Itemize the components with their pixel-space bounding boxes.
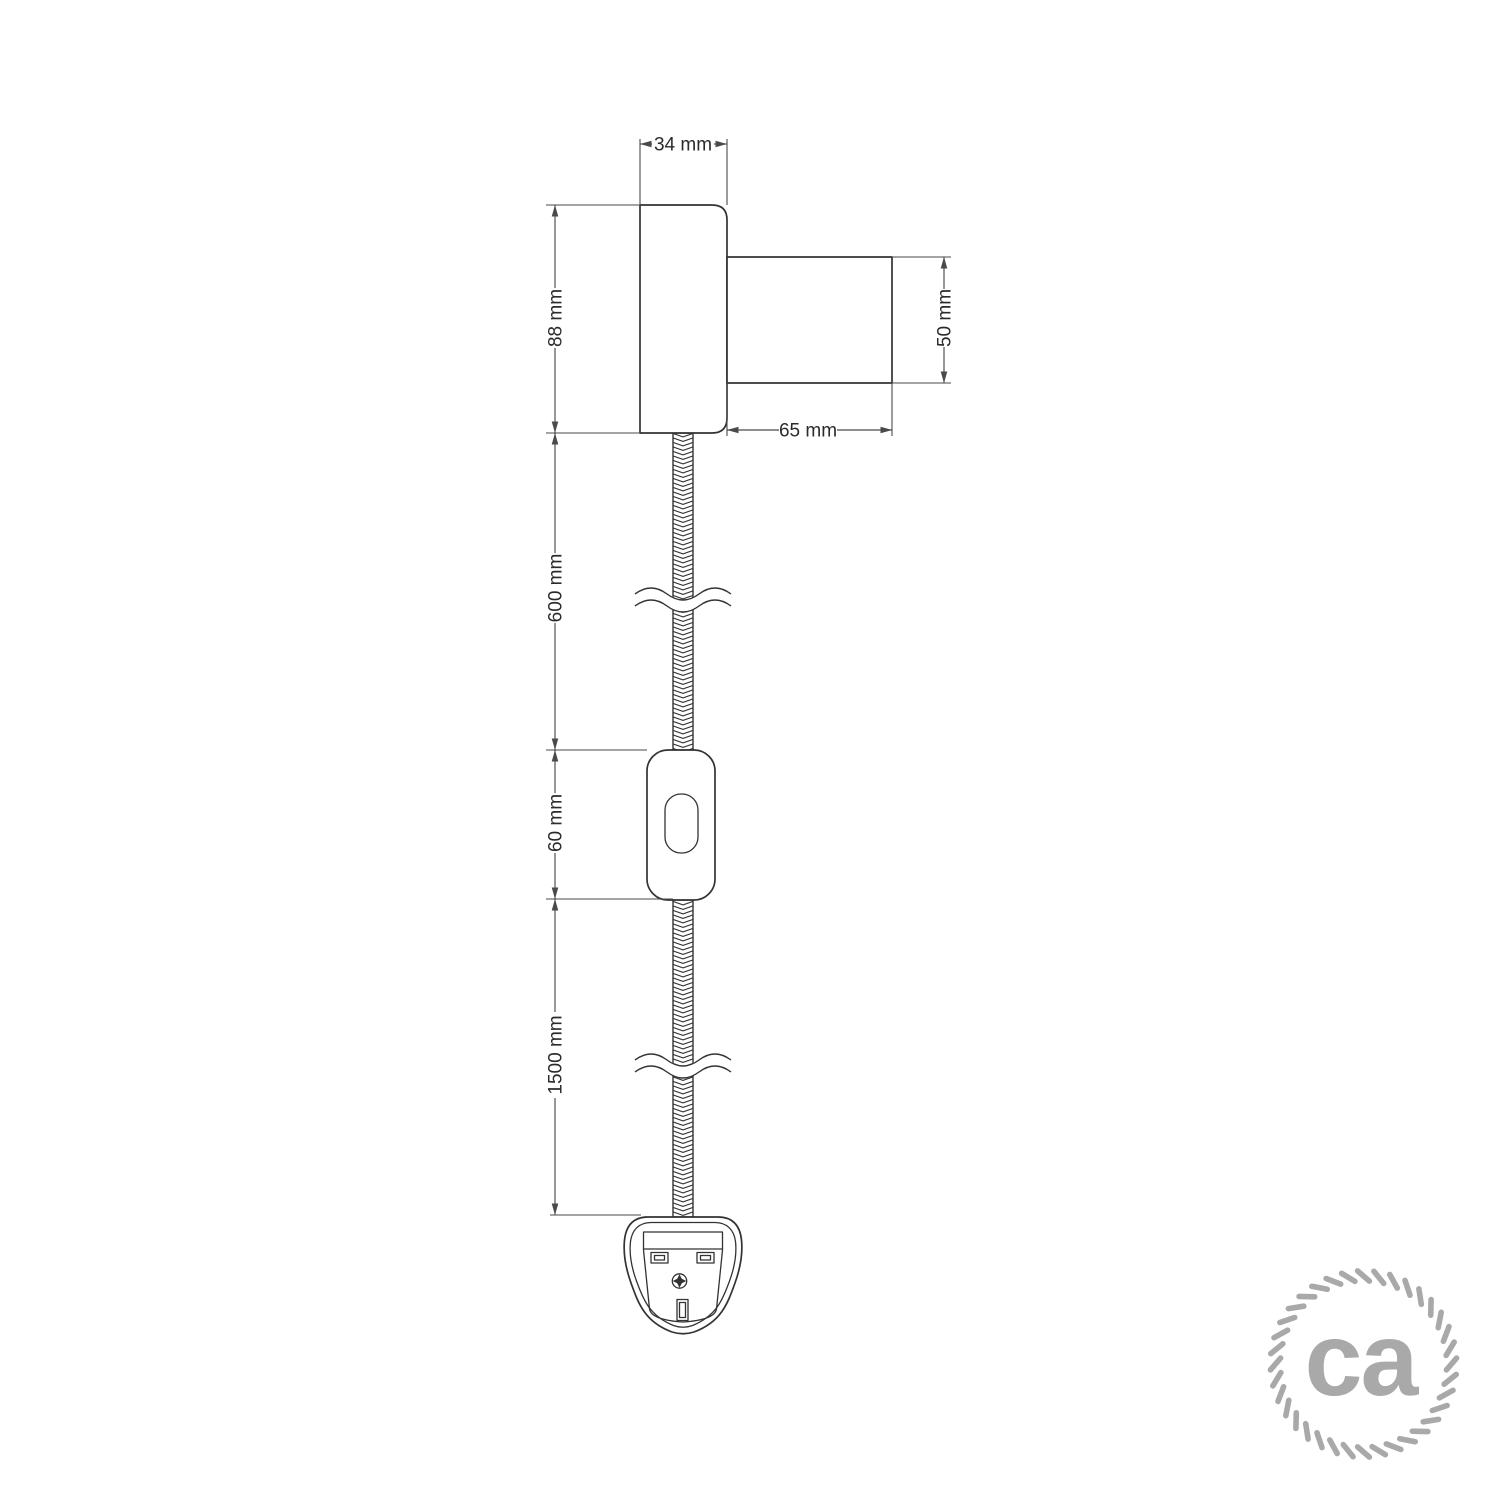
rope-strand	[1423, 1419, 1438, 1421]
lamp-body	[640, 205, 727, 433]
logo-ca-text: ca	[1305, 1302, 1420, 1418]
rope-strand	[1273, 1373, 1281, 1386]
rope-strand	[1270, 1358, 1280, 1370]
rope-strand	[1330, 1440, 1338, 1454]
rope-strand	[1280, 1318, 1295, 1323]
rope-strand	[1446, 1358, 1456, 1370]
dim-label-lower-cable: 1500 mm	[546, 1015, 567, 1094]
product-dimension-diagram: 34 mm 88 mm 50 mm 65 mm 600 mm 60 mm 150…	[0, 0, 1500, 1500]
rope-strand	[1317, 1433, 1322, 1448]
uk-plug	[624, 1217, 742, 1334]
diagram-page: 34 mm 88 mm 50 mm 65 mm 600 mm 60 mm 150…	[0, 0, 1500, 1500]
rope-strand	[1374, 1271, 1384, 1283]
creative-cables-logo: ca	[1270, 1271, 1456, 1457]
dim-label-body-width: 34 mm	[654, 135, 712, 156]
dim-label-socket-length: 65 mm	[779, 421, 837, 442]
dim-label-upper-cable: 600 mm	[546, 554, 567, 623]
rope-strand	[1358, 1271, 1370, 1281]
lower-braided-cable	[673, 900, 693, 1217]
rope-strand	[1432, 1406, 1447, 1411]
inline-switch	[647, 750, 715, 900]
rope-strand	[1278, 1387, 1284, 1402]
rope-strand	[1372, 1447, 1385, 1455]
dim-label-socket-diameter: 50 mm	[935, 289, 956, 347]
rope-strand	[1271, 1344, 1283, 1354]
rope-strand	[1438, 1312, 1441, 1327]
rope-strand	[1286, 1400, 1289, 1415]
rope-strand	[1419, 1289, 1421, 1304]
dim-label-body-height: 88 mm	[546, 289, 567, 347]
rope-strand	[1274, 1330, 1288, 1338]
rope-strand	[1444, 1374, 1456, 1384]
rope-strand	[1312, 1286, 1327, 1289]
rope-strand	[1343, 1445, 1353, 1457]
rope-strand	[1306, 1424, 1308, 1439]
dim-label-switch-body: 60 mm	[546, 794, 567, 852]
lamp-socket	[727, 257, 892, 383]
rope-strand	[1439, 1390, 1453, 1398]
rope-strand	[1443, 1327, 1449, 1342]
rope-strand	[1446, 1342, 1454, 1355]
rope-strand	[1400, 1439, 1415, 1442]
rope-strand	[1358, 1447, 1370, 1457]
rope-strand	[1405, 1280, 1410, 1295]
rope-strand	[1342, 1273, 1355, 1281]
rope-strand	[1326, 1279, 1341, 1285]
rope-strand	[1390, 1275, 1398, 1289]
rope-strand	[1386, 1444, 1401, 1450]
rope-strand	[1288, 1306, 1303, 1308]
upper-braided-cable	[673, 433, 693, 750]
